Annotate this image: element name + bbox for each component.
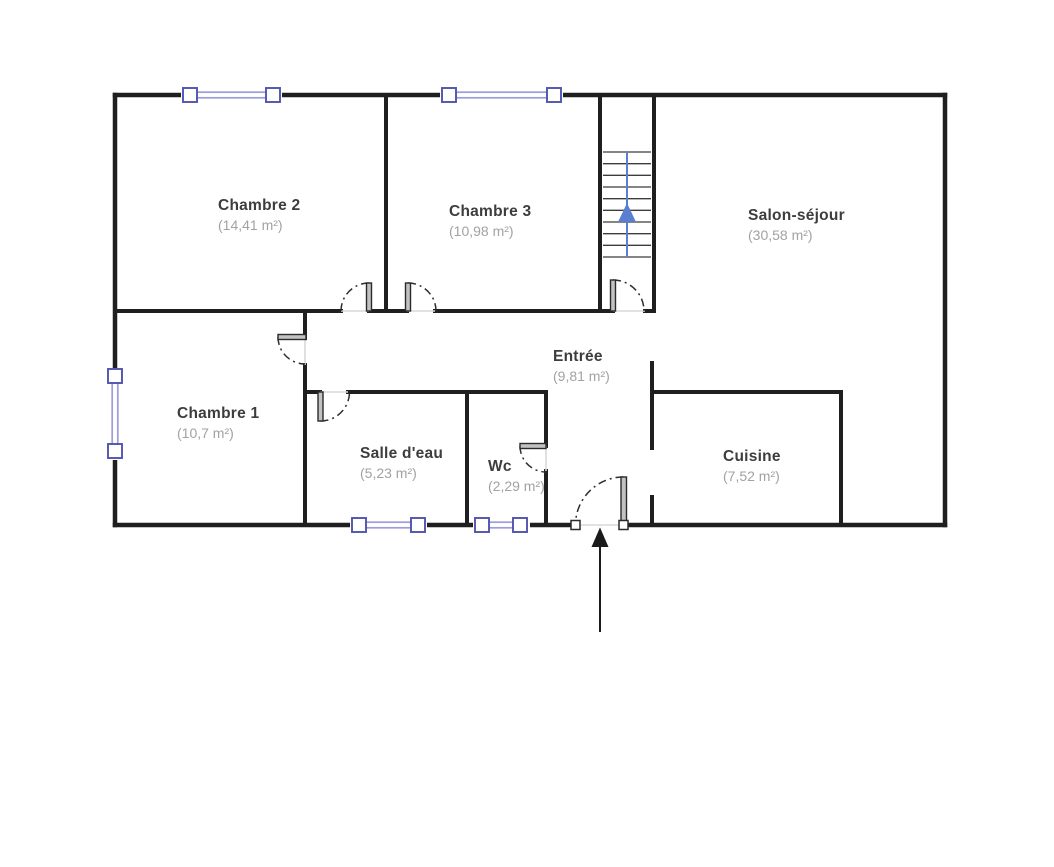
door-panel-entry bbox=[621, 477, 627, 525]
door-arc-salle-eau bbox=[321, 392, 350, 421]
window-rail bbox=[112, 382, 118, 445]
room-name: Salle d'eau bbox=[360, 445, 443, 462]
room-area: (10,98 m²) bbox=[449, 223, 531, 240]
room-label-cuisine: Cuisine (7,52 m²) bbox=[723, 448, 781, 485]
doors bbox=[278, 280, 644, 530]
room-name: Entrée bbox=[553, 348, 610, 365]
window-cap bbox=[442, 88, 456, 102]
door-arc-chambre3 bbox=[408, 283, 436, 311]
room-name: Cuisine bbox=[723, 448, 781, 465]
door-panel-chambre2 bbox=[367, 283, 372, 311]
window-cap bbox=[411, 518, 425, 532]
entrance-arrow-head bbox=[592, 528, 609, 548]
window-rail bbox=[455, 92, 548, 98]
room-area: (7,52 m²) bbox=[723, 468, 781, 485]
window-rail bbox=[195, 92, 268, 98]
room-label-chambre-3: Chambre 3 (10,98 m²) bbox=[449, 203, 531, 240]
room-area: (2,29 m²) bbox=[488, 478, 545, 495]
room-area: (30,58 m²) bbox=[748, 227, 845, 244]
floor-plan-drawing bbox=[0, 0, 1054, 867]
room-label-wc: Wc (2,29 m²) bbox=[488, 458, 545, 495]
room-area: (5,23 m²) bbox=[360, 465, 443, 482]
door-panel-stairwell bbox=[611, 280, 616, 311]
window-cap bbox=[108, 444, 122, 458]
door-panel-wc bbox=[520, 444, 546, 449]
room-label-chambre-2: Chambre 2 (14,41 m²) bbox=[218, 197, 300, 234]
room-name: Chambre 1 bbox=[177, 405, 259, 422]
stair-arrow-head bbox=[618, 203, 636, 222]
room-area: (9,81 m²) bbox=[553, 368, 610, 385]
window-cap bbox=[352, 518, 366, 532]
door-hinge-square bbox=[571, 521, 580, 530]
room-name: Salon-séjour bbox=[748, 207, 845, 224]
floor-plan: Chambre 2 (14,41 m²) Chambre 3 (10,98 m²… bbox=[0, 0, 1054, 867]
window-cap bbox=[547, 88, 561, 102]
window-wc bbox=[473, 518, 530, 532]
room-name: Chambre 2 bbox=[218, 197, 300, 214]
door-arc-entry bbox=[576, 477, 624, 525]
room-area: (10,7 m²) bbox=[177, 425, 259, 442]
door-arc-chambre2 bbox=[341, 283, 369, 311]
window-cap bbox=[266, 88, 280, 102]
room-label-chambre-1: Chambre 1 (10,7 m²) bbox=[177, 405, 259, 442]
room-name: Wc bbox=[488, 458, 545, 475]
window-chambre1 bbox=[108, 368, 122, 460]
door-hinge-square bbox=[619, 521, 628, 530]
window-rail bbox=[365, 522, 413, 528]
window-cap bbox=[475, 518, 489, 532]
entrance-arrow-icon bbox=[592, 528, 609, 633]
room-label-salle-d-eau: Salle d'eau (5,23 m²) bbox=[360, 445, 443, 482]
window-chambre3 bbox=[440, 88, 563, 102]
door-arc-chambre1 bbox=[278, 337, 305, 364]
door-thresholds bbox=[305, 311, 645, 525]
window-rail bbox=[488, 522, 515, 528]
door-panel-salle-eau bbox=[318, 392, 323, 421]
window-cap bbox=[183, 88, 197, 102]
room-label-entree: Entrée (9,81 m²) bbox=[553, 348, 610, 385]
room-name: Chambre 3 bbox=[449, 203, 531, 220]
door-arc-stairwell bbox=[613, 280, 644, 311]
door-panel-chambre1 bbox=[278, 335, 306, 340]
window-salle-eau bbox=[350, 518, 427, 532]
stair-direction-arrow-icon bbox=[618, 152, 636, 257]
room-label-salon-sejour: Salon-séjour (30,58 m²) bbox=[748, 207, 845, 244]
room-area: (14,41 m²) bbox=[218, 217, 300, 234]
window-cap bbox=[108, 369, 122, 383]
door-panel-chambre3 bbox=[406, 283, 411, 311]
window-chambre2 bbox=[181, 88, 282, 102]
staircase bbox=[603, 152, 651, 257]
window-cap bbox=[513, 518, 527, 532]
